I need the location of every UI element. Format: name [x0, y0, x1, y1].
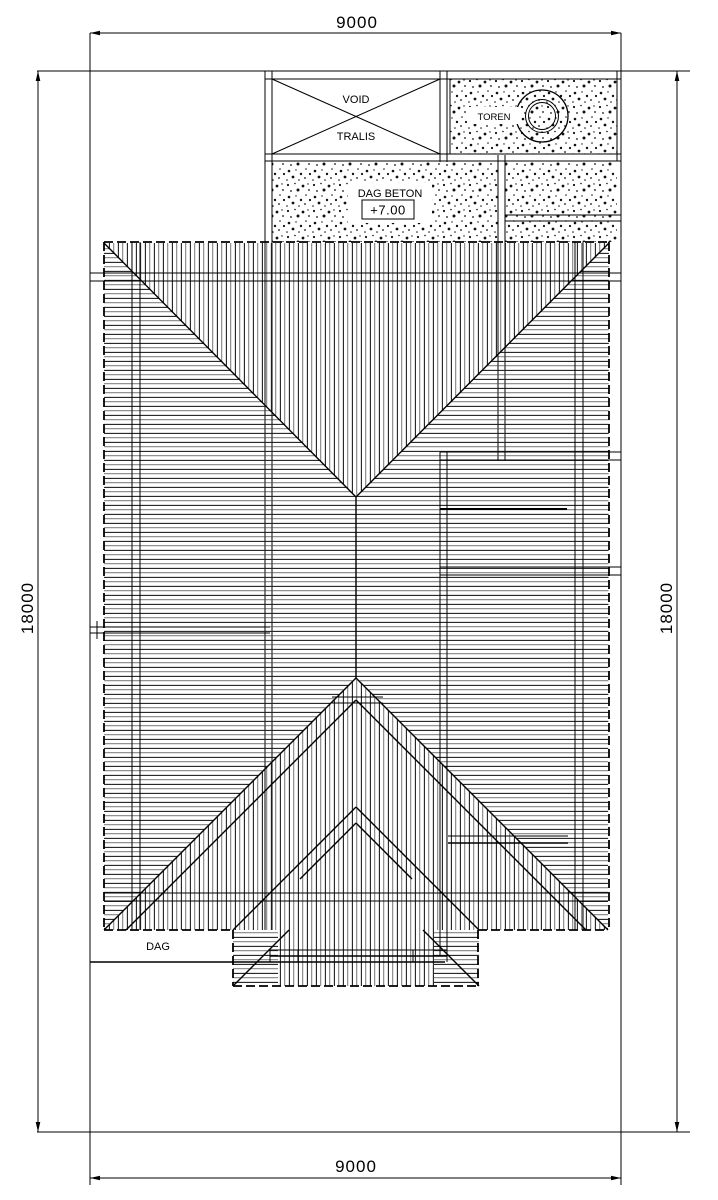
dag-beton-label: DAG BETON [358, 188, 423, 200]
right-slab [505, 161, 617, 242]
roof-plan-drawing: 9000 9000 18000 18000 [0, 0, 718, 1200]
dag-label: DAG [146, 941, 170, 953]
dag-beton-level: +7.00 [370, 203, 405, 218]
dim-text-left: 18000 [18, 582, 37, 634]
toren-label: TOREN [477, 112, 510, 123]
void-label: VOID [343, 94, 370, 106]
dim-text-top: 9000 [336, 13, 378, 32]
tralis-label: TRALIS [337, 131, 376, 143]
porch-plane-middle [278, 930, 434, 986]
dim-text-right: 18000 [657, 582, 676, 634]
porch-plane-right [434, 930, 479, 986]
porch-plane-left [233, 930, 278, 986]
roof-plan-canvas: 9000 9000 18000 18000 [0, 0, 718, 1200]
dim-text-bottom: 9000 [335, 1157, 377, 1176]
